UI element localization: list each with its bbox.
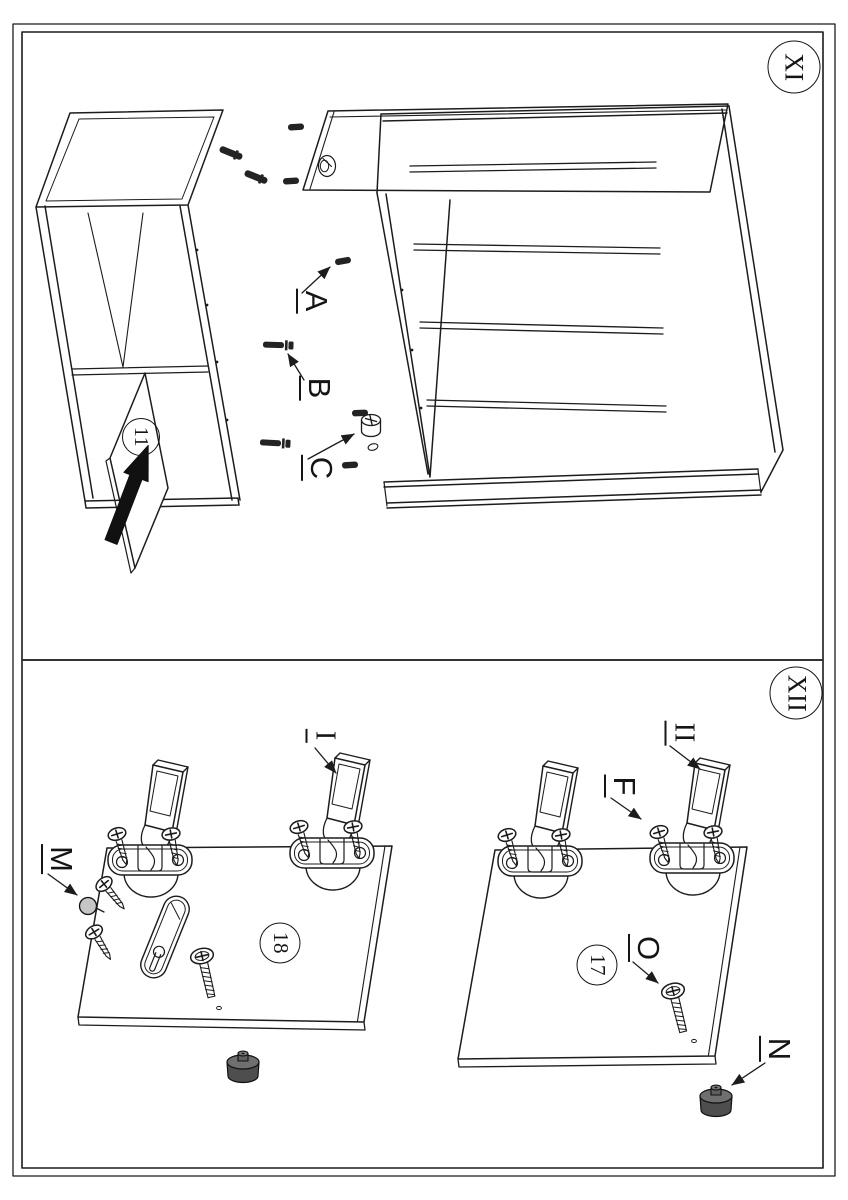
foot-n-icon [700, 1085, 732, 1116]
dowel-pin-icon [288, 123, 304, 131]
foot-icon [227, 1051, 259, 1082]
step-xi-drawing [36, 104, 783, 573]
part-ref-17: 17 [577, 945, 618, 986]
cam-symbol-icon [319, 156, 336, 177]
dowel-pin-icon [342, 461, 358, 468]
step-badge-xi: XI [768, 41, 821, 94]
assembly-line-art [0, 0, 848, 1200]
wardrobe-body-drawing [377, 106, 783, 508]
part-ref-18: 18 [260, 923, 301, 964]
dowel-pin-icon [335, 256, 352, 265]
instruction-page: XI 11 A B C XII 18 17 M I F II O N [0, 0, 848, 1200]
leader-n [732, 1063, 765, 1085]
hardware-label-i: I [306, 729, 339, 743]
leader-i [315, 748, 336, 773]
hardware-label-m: M [41, 844, 77, 874]
euro-screw-icon [263, 340, 294, 351]
shelves-drawing [410, 162, 666, 412]
step-xii-drawing [48, 746, 765, 1117]
part-ref-11: 11 [122, 418, 160, 456]
cam-lock-icon [362, 415, 381, 452]
dowel-pin-icon [283, 177, 299, 185]
hardware-label-ii: II [665, 721, 698, 746]
knob-icon [80, 898, 97, 915]
leader-f [611, 798, 641, 819]
dowel-screw-icon [218, 144, 244, 162]
step-badge-xii: XII [770, 667, 823, 720]
hardware-label-a: A [296, 289, 332, 314]
hardware-label-c: C [301, 455, 337, 481]
leader-m [48, 874, 77, 895]
euro-screw-icon [260, 437, 291, 449]
hardware-label-b: B [299, 376, 335, 401]
hardware-label-n: N [759, 1036, 795, 1062]
dowel-screw-icon [243, 168, 269, 186]
hardware-label-o: O [628, 934, 664, 962]
leader-ii [670, 746, 700, 769]
hardware-label-f: F [604, 775, 640, 798]
